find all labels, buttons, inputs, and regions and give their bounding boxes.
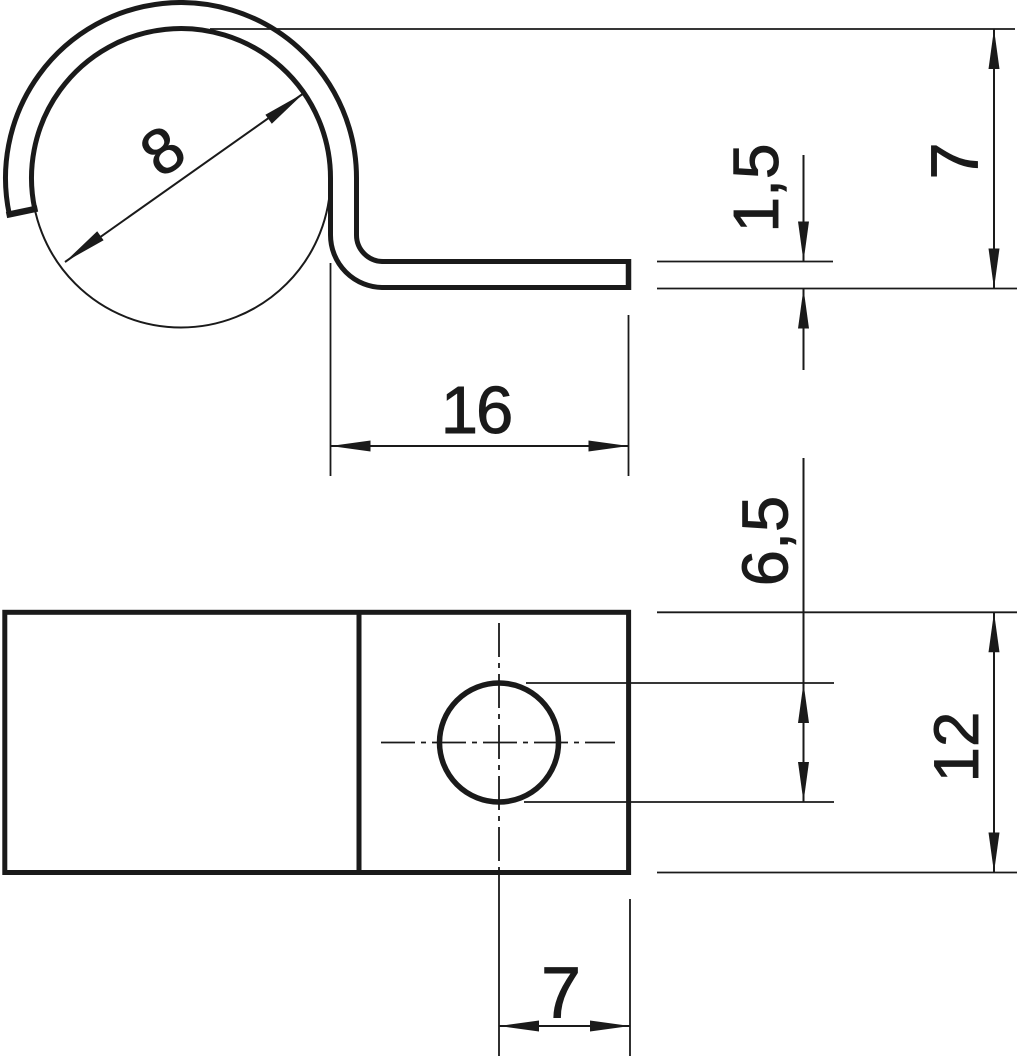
svg-text:7: 7: [541, 953, 581, 1033]
svg-text:12: 12: [922, 712, 992, 783]
svg-text:6,5: 6,5: [728, 496, 801, 586]
svg-text:16: 16: [441, 373, 512, 448]
svg-text:7: 7: [918, 143, 992, 180]
svg-text:1,5: 1,5: [720, 144, 792, 233]
